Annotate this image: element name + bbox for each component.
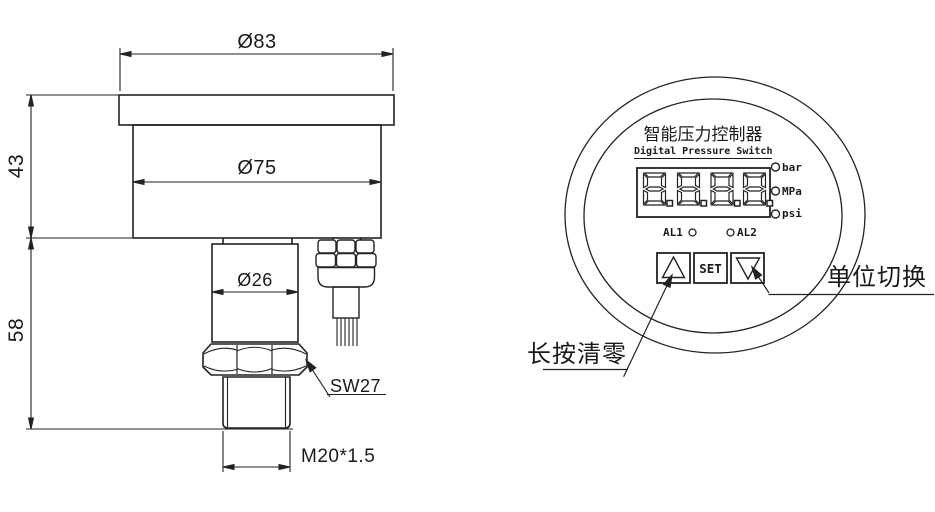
wrench-size-label: SW27 [330, 375, 381, 397]
dim-label-d75: Ø75 [217, 157, 297, 179]
cable-wires [337, 318, 357, 346]
bezel-outer-circle [565, 77, 865, 353]
cable-gland [316, 238, 376, 318]
sensor-neck [212, 244, 298, 342]
set-button-label: SET [694, 253, 727, 283]
device-title-en: Digital Pressure Switch [634, 146, 772, 159]
dimension-lines [26, 48, 393, 472]
technical-drawing: Ø83 Ø75 Ø26 43 58 SW27 M20*1.5 智能压力控制器 D… [0, 0, 935, 512]
annotation-long-press-zero: 长按清零 [527, 342, 627, 368]
thread-stud [223, 377, 290, 428]
dim-label-d26: Ø26 [215, 269, 295, 291]
top-flange [119, 95, 394, 125]
seven-segment-display [644, 173, 773, 206]
dim-label-58: 58 [6, 308, 30, 352]
unit-label-psi: psi [782, 208, 802, 219]
unit-label-bar: bar [782, 162, 802, 173]
annotation-unit-switch: 单位切换 [827, 265, 927, 291]
unit-indicator-mpa [772, 187, 780, 195]
alarm-lamp-al1 [689, 229, 696, 236]
up-arrow-icon [663, 257, 685, 278]
unit-indicator-psi [772, 210, 780, 218]
alarm-lamp-al2 [727, 229, 734, 236]
alarm-label-al2: AL2 [737, 227, 757, 239]
unit-label-mpa: MPa [782, 186, 802, 197]
unit-indicator-bar [772, 163, 780, 171]
hex-nut [203, 344, 307, 375]
device-title-cn: 智能压力控制器 [623, 126, 783, 144]
thread-label: M20*1.5 [301, 446, 375, 468]
dim-label-43: 43 [6, 144, 30, 188]
dim-label-d83: Ø83 [217, 31, 297, 53]
drawing-lines [0, 0, 935, 512]
alarm-label-al1: AL1 [663, 227, 683, 239]
